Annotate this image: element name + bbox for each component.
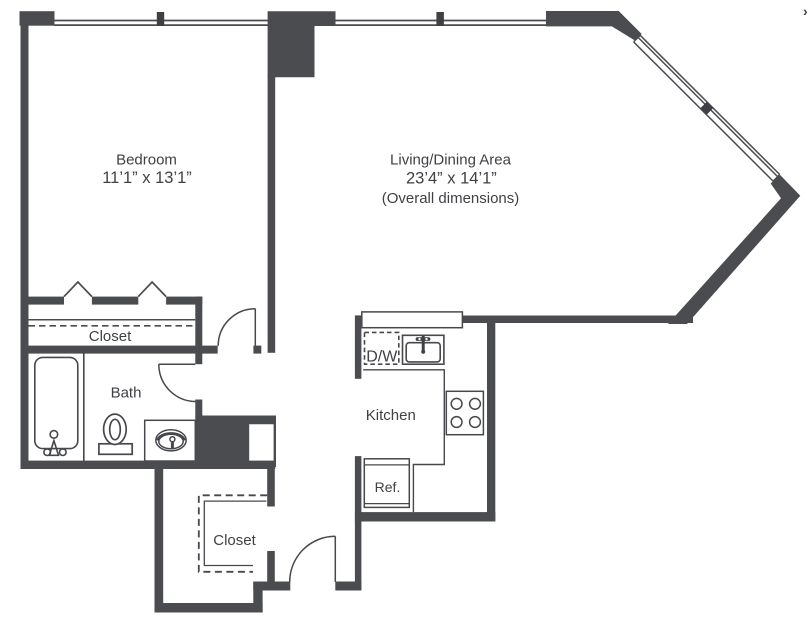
svg-text:Closet: Closet: [213, 532, 256, 549]
svg-text:Living/Dining Area: Living/Dining Area: [390, 152, 512, 169]
svg-text:11’1” x 13’1”: 11’1” x 13’1”: [102, 169, 192, 187]
svg-text:Kitchen: Kitchen: [366, 407, 416, 424]
svg-text:Ref.: Ref.: [375, 479, 401, 495]
svg-text:Closet: Closet: [89, 328, 132, 345]
svg-text:(Overall dimensions): (Overall dimensions): [382, 190, 520, 207]
svg-text:D/W: D/W: [366, 349, 398, 366]
svg-text:Bath: Bath: [111, 384, 142, 401]
svg-text:23’4” x 14’1”: 23’4” x 14’1”: [406, 170, 497, 188]
svg-text:›: ›: [803, 3, 808, 19]
svg-text:Bedroom: Bedroom: [116, 152, 177, 169]
